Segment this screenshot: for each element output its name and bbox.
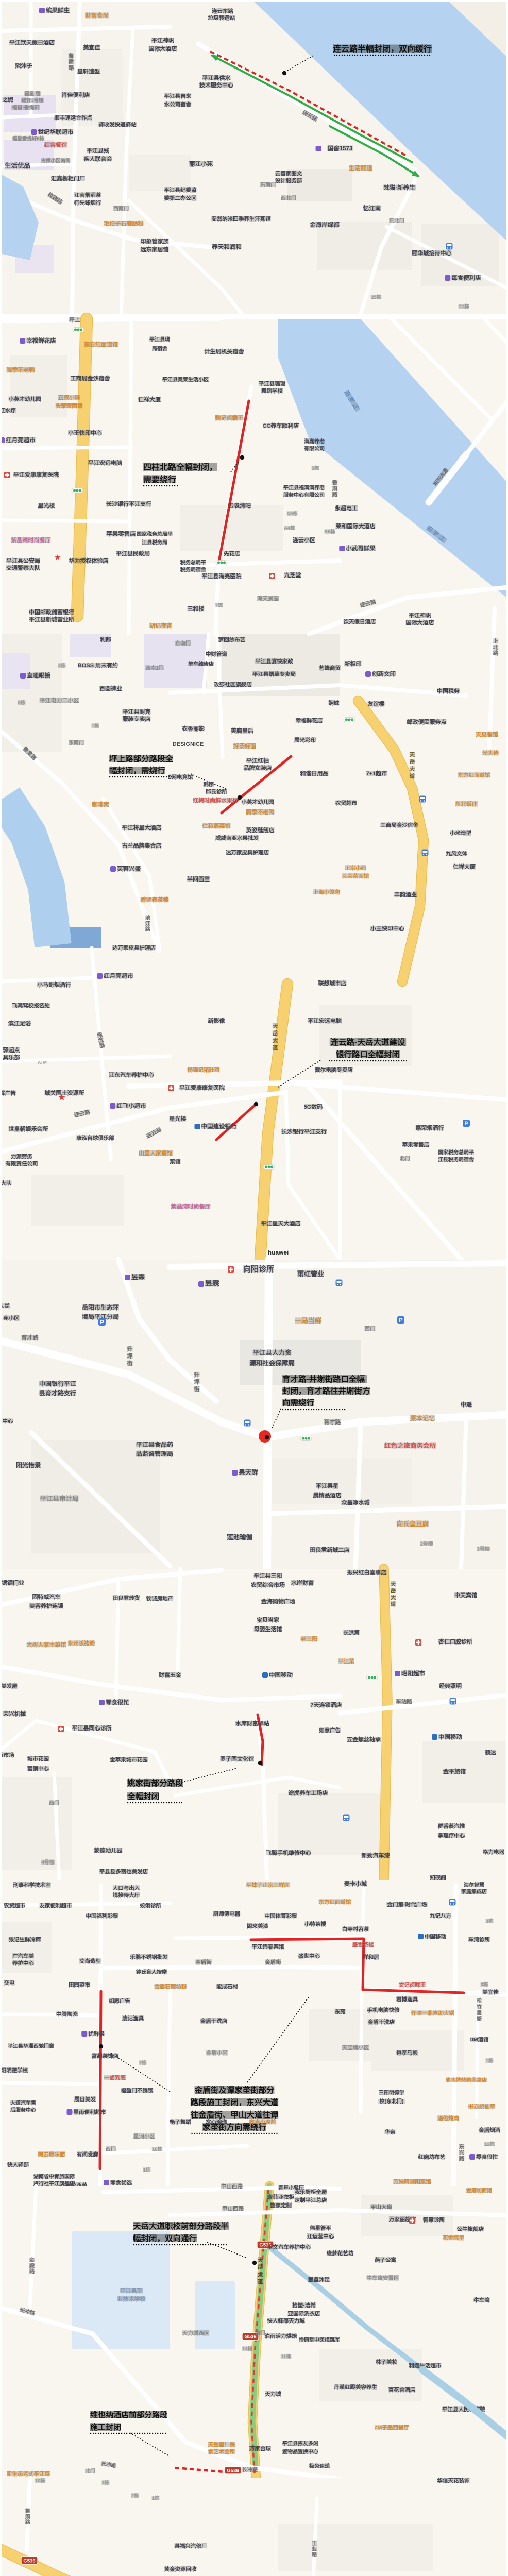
svg-text:头荣荣面馆: 头荣荣面馆 [56, 402, 83, 409]
svg-text:平江县残: 平江县残 [87, 147, 109, 154]
svg-text:我乐厨柜全屋: 我乐厨柜全屋 [295, 2189, 327, 2195]
svg-text:杨锦记猪肚鸡: 杨锦记猪肚鸡 [188, 1066, 220, 1073]
svg-text:BOSS 周末有约: BOSS 周末有约 [78, 662, 118, 669]
svg-text:天: 天 [273, 1023, 278, 1029]
svg-text:县福兴汽修厂: 县福兴汽修厂 [175, 2543, 207, 2549]
svg-text:红飞小超市: 红飞小超市 [116, 1102, 146, 1109]
svg-text:驿起点: 驿起点 [3, 1046, 20, 1054]
svg-text:金盾干洗店: 金盾干洗店 [200, 2018, 228, 2024]
svg-text:众昌净水城: 众昌净水城 [342, 1499, 370, 1506]
svg-text:伟星管平: 伟星管平 [310, 2225, 331, 2231]
svg-text:天见餐馆: 天见餐馆 [476, 731, 498, 738]
svg-text:国家税务总局平: 国家税务总局平 [438, 1149, 474, 1156]
svg-text:3栋: 3栋 [102, 2480, 110, 2486]
svg-text:小英才幼儿园: 小英才幼儿园 [8, 396, 41, 402]
svg-text:苑小区: 苑小区 [3, 1315, 20, 1321]
svg-text:平妹子正宗三鲜面: 平妹子正宗三鲜面 [246, 1882, 290, 1888]
svg-text:金盾街及谭家垄街部分: 金盾街及谭家垄街部分 [194, 2085, 275, 2095]
svg-text:后服务中心: 后服务中心 [10, 2107, 36, 2113]
svg-text:平江县纪委监: 平江县纪委监 [164, 187, 197, 193]
svg-text:辉广告: 辉广告 [0, 1090, 16, 1096]
svg-text:公牛旗舰店: 公牛旗舰店 [457, 2226, 484, 2232]
svg-text:东北饭庄: 东北饭庄 [455, 800, 478, 807]
svg-text:嘉荣烟酒行: 嘉荣烟酒行 [415, 1124, 444, 1131]
svg-text:飞鸿驾校报名处: 飞鸿驾校报名处 [12, 1002, 50, 1009]
svg-text:四柱北路全幅封闭，: 四柱北路全幅封闭， [143, 462, 217, 472]
svg-text:罗子国文化馆: 罗子国文化馆 [220, 1755, 254, 1762]
svg-text:壹鑫沐足: 壹鑫沐足 [308, 2276, 330, 2283]
svg-text:岳: 岳 [258, 2264, 263, 2270]
svg-text:戴尔电脑专卖店: 戴尔电脑专卖店 [315, 1066, 353, 1073]
svg-text:红梅时尚鲜水果行: 红梅时尚鲜水果行 [193, 796, 238, 804]
svg-text:达万家皮具护理店: 达万家皮具护理店 [226, 849, 269, 856]
svg-text:平江县海亮医院: 平江县海亮医院 [202, 572, 242, 580]
svg-text:胡记夜宵: 胡记夜宵 [149, 622, 172, 629]
svg-text:老三阳: 老三阳 [300, 1635, 318, 1642]
svg-text:江东汽车养护中心: 江东汽车养护中心 [109, 1071, 154, 1078]
svg-text:富起装饰店: 富起装饰店 [92, 2053, 119, 2059]
svg-text:天: 天 [410, 752, 415, 758]
svg-text:中山西路: 中山西路 [221, 2183, 243, 2190]
svg-text:7栋: 7栋 [139, 2060, 147, 2066]
svg-text:智慧诊所: 智慧诊所 [422, 2216, 445, 2223]
svg-text:平江县职: 平江县职 [120, 2287, 143, 2294]
svg-text:东方红面道馆: 东方红面道馆 [319, 1899, 351, 1905]
svg-text:huawei: huawei [268, 1249, 289, 1256]
svg-text:县育才路支行: 县育才路支行 [39, 1389, 76, 1397]
svg-text:养天和润和: 养天和润和 [211, 243, 242, 250]
svg-text:每食便利店: 每食便利店 [451, 274, 481, 281]
svg-text:坪: 坪 [194, 1379, 200, 1385]
svg-text:街: 街 [476, 2016, 482, 2022]
svg-text:平江爱康康复医院: 平江爱康康复医院 [179, 1084, 225, 1091]
svg-text:滨: 滨 [145, 914, 150, 921]
svg-text:1栋: 1栋 [152, 2495, 160, 2501]
svg-text:东: 东 [459, 2143, 465, 2150]
svg-text:B5栋: B5栋 [324, 529, 335, 535]
svg-text:银行路口全幅封闭: 银行路口全幅封闭 [336, 1049, 400, 1059]
svg-text:道: 道 [391, 1601, 396, 1607]
svg-text:平县县多丽也美发店: 平县县多丽也美发店 [99, 1868, 148, 1875]
svg-text:育才路: 育才路 [22, 1334, 39, 1341]
svg-text:腾季不老鸭: 腾季不老鸭 [246, 808, 275, 816]
svg-text:2号楼: 2号楼 [420, 1540, 433, 1547]
svg-text:肖佳便利店: 肖佳便利店 [62, 91, 90, 98]
svg-text:G536: G536 [227, 2468, 239, 2474]
svg-text:星雨便利超市: 星雨便利超市 [74, 2109, 106, 2115]
svg-text:天力城: 天力城 [265, 2391, 281, 2397]
svg-text:红月亮超市: 红月亮超市 [6, 436, 36, 444]
svg-text:P: P [464, 1121, 468, 1127]
svg-text:仟味一鼎自助火锅: 仟味一鼎自助火锅 [411, 2010, 454, 2016]
svg-text:殿: 殿 [29, 2263, 35, 2269]
svg-text:中遥: 中遥 [461, 1401, 472, 1408]
svg-text:菜馆: 菜馆 [170, 1158, 181, 1165]
svg-text:星光楼: 星光楼 [170, 1115, 187, 1122]
svg-text:苹果零售店: 苹果零售店 [106, 530, 136, 537]
svg-text:海尔智慧: 海尔智慧 [464, 1882, 484, 1888]
svg-text:饮天假日酒店: 饮天假日酒店 [343, 618, 376, 625]
svg-text:平江神帆: 平江神帆 [409, 612, 431, 619]
svg-text:厨师傅电器: 厨师傅电器 [213, 1910, 241, 1917]
svg-text:14栋: 14栋 [242, 2346, 253, 2352]
svg-text:国际大酒店: 国际大酒店 [149, 45, 177, 52]
svg-text:杏仁口腔诊所: 杏仁口腔诊所 [438, 1638, 472, 1645]
svg-text:服务中心有限公司: 服务中心有限公司 [283, 492, 325, 498]
svg-text:书亦烧仙草: 书亦烧仙草 [468, 2103, 496, 2110]
svg-text:车站路: 车站路 [396, 1698, 412, 1705]
svg-text:美宜佳: 美宜佳 [83, 44, 100, 51]
svg-text:P: P [399, 1317, 402, 1324]
svg-text:邱氏诊所: 邱氏诊所 [206, 788, 227, 795]
svg-text:交通警察大队: 交通警察大队 [6, 564, 41, 571]
svg-text:小马哥烟酒行: 小马哥烟酒行 [37, 981, 71, 988]
svg-text:路: 路 [332, 491, 338, 498]
svg-text:古兰品牌集合店: 古兰品牌集合店 [122, 842, 162, 849]
svg-text:生活频道: 生活频道 [349, 164, 372, 172]
svg-text:华信天花装饰: 华信天花装饰 [437, 2477, 470, 2484]
svg-text:1栋: 1栋 [486, 2058, 494, 2064]
svg-text:金: 金 [29, 2257, 35, 2263]
svg-text:零食很忙: 零食很忙 [105, 1699, 129, 1706]
svg-text:梦回纱布艺: 梦回纱布艺 [218, 636, 246, 643]
svg-text:长沙银行平江支行: 长沙银行平江支行 [106, 500, 151, 507]
svg-text:一马当鲜: 一马当鲜 [295, 1317, 321, 1325]
svg-text:11栋: 11栋 [281, 2353, 291, 2360]
svg-text:DM酒馆: DM酒馆 [469, 2036, 489, 2043]
svg-text:街: 街 [127, 1360, 133, 1367]
svg-text:枣木牌烤鸭鼎富店: 枣木牌烤鸭鼎富店 [445, 2077, 487, 2083]
svg-text:紫晶湾时尚餐厅: 紫晶湾时尚餐厅 [171, 1202, 211, 1210]
svg-text:玫莎社区旗舰店: 玫莎社区旗舰店 [214, 681, 252, 688]
svg-text:幅封闭，需绕行: 幅封闭，需绕行 [109, 766, 165, 775]
svg-text:北门: 北门 [400, 1155, 410, 1162]
svg-text:华为授权体验店: 华为授权体验店 [69, 557, 109, 564]
svg-text:财富五金: 财富五金 [158, 1671, 182, 1679]
svg-text:街: 街 [194, 1385, 200, 1393]
svg-text:竹: 竹 [476, 2004, 482, 2010]
svg-text:5G数码: 5G数码 [304, 1103, 323, 1110]
svg-text:中国福利彩票: 中国福利彩票 [86, 1912, 118, 1919]
svg-text:小英才幼儿园: 小英才幼儿园 [241, 799, 274, 805]
svg-text:新相印: 新相印 [345, 660, 362, 667]
svg-text:7天连锁酒店: 7天连锁酒店 [310, 1701, 342, 1708]
svg-text:路: 路 [69, 64, 74, 71]
svg-text:昭阳超市: 昭阳超市 [401, 1670, 425, 1677]
svg-text:长洪第: 长洪第 [343, 1629, 360, 1636]
svg-text:中腾陶瓷: 中腾陶瓷 [56, 2011, 78, 2018]
svg-text:10栋: 10栋 [35, 2478, 46, 2484]
svg-text:途虎养车工场店: 途虎养车工场店 [289, 1789, 328, 1797]
svg-text:美胸皇后: 美胸皇后 [231, 727, 253, 734]
svg-text:道: 道 [410, 773, 415, 779]
svg-text:长沙银行平江支行: 长沙银行平江支行 [281, 1128, 327, 1135]
svg-text:福盈门不锈钢: 福盈门不锈钢 [121, 2087, 154, 2094]
svg-text:水公司宿舍: 水公司宿舍 [164, 101, 192, 108]
svg-text:江水疗: 江水疗 [0, 407, 16, 414]
svg-text:小王快印中心: 小王快印中心 [370, 925, 404, 932]
svg-text:祥和居: 祥和居 [363, 1954, 379, 1960]
svg-text:鲁: 鲁 [332, 479, 338, 486]
svg-text:汇嘉橱柜门厂: 汇嘉橱柜门厂 [51, 175, 85, 182]
svg-text:东北门: 东北门 [389, 217, 404, 224]
svg-text:锈钢门业: 锈钢门业 [2, 1579, 24, 1586]
svg-text:红谷餐馆: 红谷餐馆 [44, 141, 67, 148]
svg-text:阁来美漆: 阁来美漆 [247, 1923, 268, 1929]
svg-text:滨江足浴: 滨江足浴 [8, 1020, 31, 1027]
svg-text:康泓台球俱乐部: 康泓台球俱乐部 [76, 1134, 114, 1141]
svg-text:平江县自来: 平江县自来 [164, 93, 192, 99]
svg-text:永超电工: 永超电工 [334, 504, 358, 512]
svg-text:A4栋: A4栋 [284, 525, 295, 531]
svg-text:固特威汽车: 固特威汽车 [32, 1593, 61, 1600]
svg-text:工商局金沙宿舍: 工商局金沙宿舍 [71, 375, 111, 382]
svg-text:索菲亚衣柜: 索菲亚衣柜 [267, 2194, 295, 2200]
svg-text:有限责任公司: 有限责任公司 [6, 1160, 38, 1167]
svg-text:升: 升 [194, 1371, 200, 1378]
svg-text:连云小区: 连云小区 [293, 536, 315, 544]
svg-text:平江锦春宾馆: 平江锦春宾馆 [252, 1943, 284, 1950]
svg-text:定制平江总店: 定制平江总店 [294, 2197, 327, 2204]
svg-text:坪: 坪 [127, 1353, 133, 1360]
svg-text:星光楼: 星光楼 [38, 502, 55, 509]
svg-text:母婴生活馆: 母婴生活馆 [254, 1625, 282, 1633]
svg-text:北门: 北门 [85, 2468, 95, 2475]
svg-text:盛世中心: 盛世中心 [298, 1953, 320, 1959]
svg-text:中国体育彩票: 中国体育彩票 [265, 1912, 297, 1919]
svg-text:海天景园: 海天景园 [257, 595, 279, 602]
svg-text:西门: 西门 [106, 2146, 116, 2153]
svg-text:衣香丽影: 衣香丽影 [182, 725, 205, 732]
svg-text:黄金资源回收: 黄金资源回收 [164, 2566, 197, 2572]
svg-text:西北门: 西北门 [281, 195, 296, 201]
svg-text:平江县拣友多闲: 平江县拣友多闲 [282, 2440, 318, 2447]
svg-text:上: 上 [493, 638, 499, 645]
svg-text:包孝马殿: 包孝马殿 [396, 2049, 418, 2056]
svg-text:税务局宿舍: 税务局宿舍 [180, 566, 207, 573]
svg-text:疾人联合会: 疾人联合会 [84, 155, 113, 162]
svg-text:小王快印中心: 小王快印中心 [67, 429, 102, 436]
svg-text:3栋: 3栋 [481, 1981, 488, 1988]
svg-text:平江县公安局: 平江县公安局 [6, 557, 40, 564]
svg-text:路: 路 [29, 2268, 35, 2275]
svg-text:极兔速递: 极兔速递 [309, 2463, 330, 2469]
svg-text:平江县奥莱生活小区: 平江县奥莱生活小区 [162, 376, 209, 383]
svg-text:25栋: 25栋 [371, 294, 382, 300]
svg-text:华帝: 华帝 [385, 2129, 396, 2136]
svg-text:校(东北门): 校(东北门) [380, 2098, 404, 2105]
svg-text:拿理疗中心: 拿理疗中心 [437, 1832, 465, 1839]
svg-text:岳阳市生态环: 岳阳市生态环 [82, 1303, 119, 1311]
svg-text:九芝堂: 九芝堂 [284, 571, 301, 579]
svg-text:艳子舞蹈: 艳子舞蹈 [170, 2119, 191, 2125]
svg-text:新影像: 新影像 [208, 1017, 226, 1024]
svg-text:群香蒸汽推: 群香蒸汽推 [438, 1823, 465, 1829]
svg-text:路: 路 [25, 2519, 31, 2526]
svg-text:山里人家餐馆: 山里人家餐馆 [139, 1149, 173, 1157]
svg-text:丹溪红殿美容养生: 丹溪红殿美容养生 [334, 2384, 377, 2391]
svg-text:平江将星大酒店: 平江将星大酒店 [122, 824, 162, 831]
svg-text:拾塑·洁希: 拾塑·洁希 [292, 2302, 316, 2309]
svg-text:顺丰速运合作点: 顺丰速运合作点 [54, 114, 92, 121]
svg-text:东南门: 东南门 [260, 181, 276, 188]
svg-text:麦卡小城: 麦卡小城 [344, 1880, 367, 1887]
svg-text:路: 路 [493, 650, 499, 656]
svg-text:肃: 肃 [69, 59, 74, 65]
svg-text:育才路-井塮街路口全幅: 育才路-井塮街路口全幅 [282, 1374, 365, 1384]
svg-text:魏记卤霸王: 魏记卤霸王 [215, 414, 244, 421]
svg-text:友谊楼: 友谊楼 [368, 700, 385, 707]
svg-text:金苹果城市花园: 金苹果城市花园 [109, 1756, 148, 1763]
svg-text:头荣荣面馆: 头荣荣面馆 [342, 873, 369, 879]
svg-text:养护中心: 养护中心 [12, 1960, 34, 1967]
svg-text:育才路: 育才路 [324, 1418, 342, 1426]
svg-text:西门: 西门 [365, 1325, 376, 1332]
svg-text:力源劳务: 力源劳务 [11, 1153, 32, 1160]
svg-text:岳: 岳 [273, 1030, 278, 1037]
svg-text:宽心瑜珈: 宽心瑜珈 [205, 2119, 227, 2125]
svg-text:远东家居馆: 远东家居馆 [141, 246, 169, 253]
svg-text:食艺术会所: 食艺术会所 [208, 2448, 235, 2455]
svg-text:境接待大厅: 境接待大厅 [113, 1892, 140, 1899]
svg-text:有限公司: 有限公司 [304, 445, 325, 452]
svg-text:幅封闭，双向通行: 幅封闭，双向通行 [133, 2233, 197, 2243]
svg-text:小特茶楼: 小特茶楼 [304, 1921, 326, 1927]
svg-text:平江爱康康复医院: 平江爱康康复医院 [13, 471, 59, 478]
svg-text:熙沐子: 熙沐子 [15, 62, 32, 69]
svg-text:大树人家土菜馆: 大树人家土菜馆 [27, 1641, 66, 1648]
svg-text:连云路半幅封闭，双向缓行: 连云路半幅封闭，双向缓行 [333, 44, 432, 54]
svg-text:莲池瑜伽: 莲池瑜伽 [227, 1533, 252, 1541]
svg-text:荣兴机械: 荣兴机械 [3, 1710, 26, 1717]
svg-text:小米造型: 小米造型 [449, 829, 471, 836]
svg-text:农贸综合市场: 农贸综合市场 [250, 1581, 285, 1588]
svg-text:阳明德学校: 阳明德学校 [1, 2067, 28, 2074]
svg-text:金磨坊面馆: 金磨坊面馆 [466, 2187, 492, 2194]
svg-text:牛车湾安置区: 牛车湾安置区 [367, 2275, 399, 2281]
svg-text:颖达: 颖达 [485, 1749, 496, 1756]
svg-text:大: 大 [391, 1594, 396, 1601]
svg-text:甲山西路: 甲山西路 [222, 2205, 244, 2212]
svg-text:单车维修店: 单车维修店 [188, 660, 214, 667]
svg-text:平江县人力资: 平江县人力资 [252, 1349, 292, 1357]
svg-text:平江县三阳: 平江县三阳 [254, 1572, 282, 1579]
svg-text:钦诚房地产: 钦诚房地产 [146, 1595, 174, 1602]
svg-text:天: 天 [258, 2257, 263, 2263]
svg-text:利郎: 利郎 [100, 636, 111, 643]
svg-text:阳光怡景: 阳光怡景 [16, 1461, 41, 1469]
svg-text:仁祥大厦: 仁祥大厦 [138, 396, 161, 403]
svg-text:牛车湾: 牛车湾 [473, 2297, 490, 2303]
svg-text:君博渔具: 君博渔具 [396, 1996, 418, 2003]
svg-text:如意广告: 如意广告 [319, 1727, 341, 1734]
svg-text:红磨坊布艺: 红磨坊布艺 [418, 2154, 446, 2160]
svg-text:百花台酒店: 百花台酒店 [388, 2386, 416, 2393]
svg-text:福星 香: 福星 香 [24, 91, 41, 97]
svg-text:零食很忙: 零食很忙 [476, 2154, 498, 2160]
svg-text:九记八方: 九记八方 [429, 1912, 451, 1919]
svg-text:仁祥大厦: 仁祥大厦 [453, 863, 476, 870]
svg-text:金门第·时代广场: 金门第·时代广场 [387, 1901, 427, 1908]
svg-text:货市场: 货市场 [0, 1752, 14, 1758]
svg-text:车湾诊所: 车湾诊所 [468, 1936, 490, 1943]
svg-text:东方红面道馆: 东方红面道馆 [84, 341, 118, 348]
svg-text:福星香缇轩6栋: 福星香缇轩6栋 [12, 135, 45, 142]
svg-text:凌记渔具: 凌记渔具 [122, 2015, 144, 2022]
svg-text:快人驿部天力城: 快人驿部天力城 [266, 2317, 305, 2324]
svg-text:家庭集成店: 家庭集成店 [461, 1888, 487, 1895]
svg-text:创新文印: 创新文印 [371, 670, 396, 677]
svg-text:知砚阁: 知砚阁 [430, 1874, 446, 1881]
svg-text:5栋: 5栋 [18, 700, 26, 706]
svg-text:国际大酒店: 国际大酒店 [406, 619, 434, 626]
svg-text:鲁: 鲁 [68, 53, 74, 59]
svg-text:半间画室: 半间画室 [187, 875, 210, 883]
svg-text:升: 升 [127, 1345, 133, 1352]
svg-text:阿云原味面: 阿云原味面 [38, 2151, 65, 2158]
svg-text:DESIGNICE: DESIGNICE [173, 741, 204, 748]
svg-text:北: 北 [493, 644, 499, 651]
svg-text:格力电器: 格力电器 [483, 1849, 504, 1855]
svg-text:向需绕行: 向需绕行 [282, 1398, 315, 1408]
svg-text:新劲汽车漆: 新劲汽车漆 [362, 1852, 390, 1859]
svg-text:A5栋: A5栋 [286, 511, 298, 517]
svg-text:路: 路 [459, 2155, 465, 2162]
svg-text:道: 道 [273, 1044, 278, 1051]
svg-text:宝贝当家: 宝贝当家 [257, 1616, 280, 1623]
svg-text:缤果鲜生: 缤果鲜生 [46, 7, 70, 14]
svg-text:娴妹: 娴妹 [329, 700, 340, 706]
svg-text:国家税务总局平: 国家税务总局平 [137, 531, 173, 537]
svg-text:国窖1573: 国窖1573 [328, 145, 353, 152]
svg-text:全幅封闭: 全幅封闭 [127, 1791, 159, 1801]
svg-text:酒俗烤肉: 酒俗烤肉 [437, 2115, 459, 2122]
svg-text:有间发廊: 有间发廊 [77, 2151, 98, 2158]
svg-text:毛伦子石磨肠粉: 毛伦子石磨肠粉 [104, 219, 144, 227]
svg-text:平江县华湘西驰门窗: 平江县华湘西驰门窗 [8, 2043, 54, 2049]
svg-text:生活优品: 生活优品 [5, 162, 30, 170]
svg-text:E网电竞馆: E网电竞馆 [167, 774, 193, 781]
svg-text:城关国土资源所: 城关国土资源所 [45, 1089, 84, 1096]
svg-text:农贸超市: 农贸超市 [3, 1902, 25, 1909]
svg-text:税务总局平: 税务总局平 [180, 559, 206, 566]
svg-text:达万家皮具护理店: 达万家皮具护理店 [112, 944, 156, 951]
svg-text:幸福鲜花店: 幸福鲜花店 [296, 717, 323, 724]
svg-text:G536: G536 [23, 2558, 35, 2564]
svg-text:飞腾手机维修中心: 飞腾手机维修中心 [266, 1849, 311, 1856]
svg-text:天宝塝小区: 天宝塝小区 [342, 2044, 369, 2051]
svg-text:优鲜果: 优鲜果 [88, 2030, 105, 2037]
svg-text:怡康堂中医梅跳军: 怡康堂中医梅跳军 [299, 2336, 340, 2343]
svg-text:云管家图文: 云管家图文 [275, 170, 302, 177]
svg-text:工商局金沙宿舍: 工商局金沙宿舍 [380, 822, 418, 828]
svg-text:维也纳酒店前部分路段: 维也纳酒店前部分路段 [90, 2410, 167, 2419]
svg-text:三阳明德学: 三阳明德学 [379, 2089, 404, 2096]
svg-text:中国建设银行: 中国建设银行 [201, 1123, 237, 1130]
svg-text:缘梦花艺坊: 缘梦花艺坊 [327, 2250, 354, 2257]
svg-text:万家台球: 万家台球 [249, 2445, 271, 2452]
svg-text:平江县福满满养老: 平江县福满满养老 [283, 484, 325, 491]
svg-text:肃: 肃 [25, 2513, 30, 2520]
svg-text:威威南亚水果批发: 威威南亚水果批发 [215, 835, 259, 841]
svg-text:东南门: 东南门 [69, 739, 84, 746]
svg-text:果天鲜: 果天鲜 [238, 1468, 258, 1476]
svg-text:原本记忆: 原本记忆 [410, 1414, 435, 1422]
svg-text:4号楼: 4号楼 [41, 1859, 55, 1866]
svg-text:计生局机关宿舍: 计生局机关宿舍 [205, 348, 245, 355]
svg-text:中心: 中心 [3, 1418, 13, 1425]
svg-text:7+1超市: 7+1超市 [366, 770, 387, 777]
